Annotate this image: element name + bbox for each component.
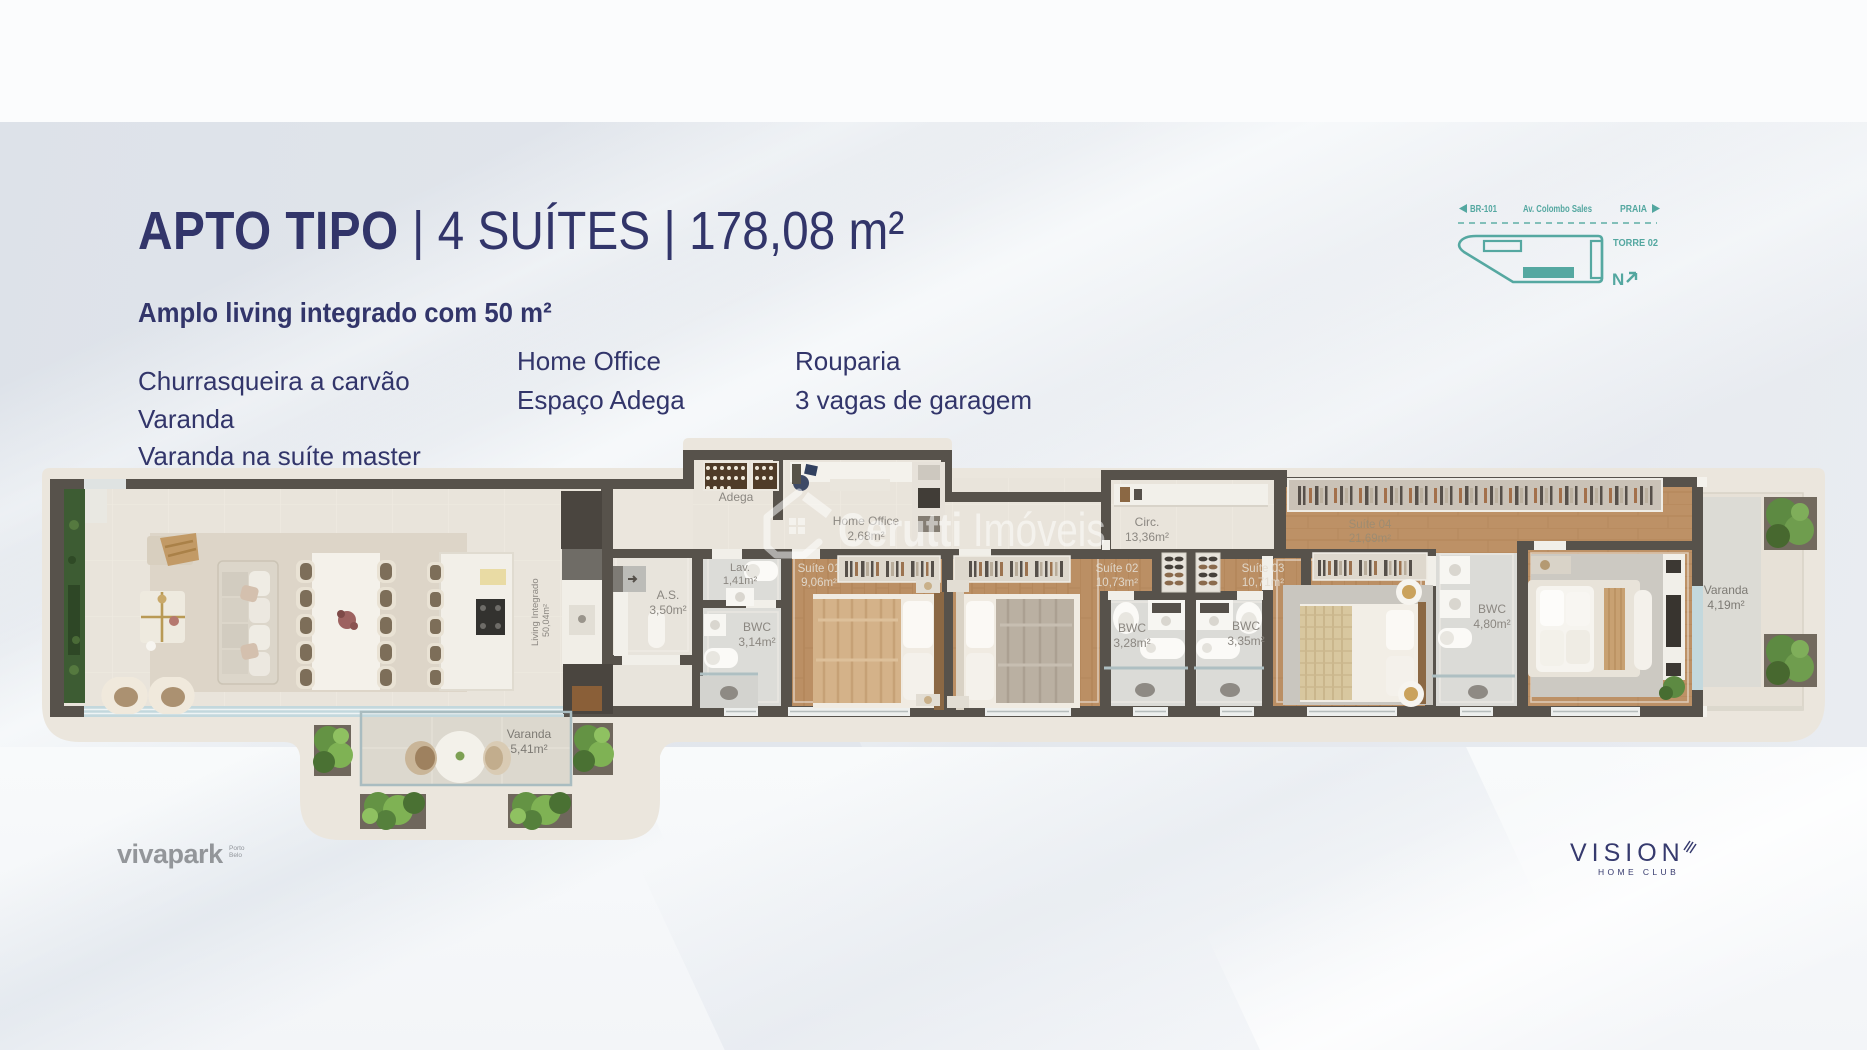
- svg-text:3,14m²: 3,14m²: [738, 635, 775, 649]
- svg-text:BWC: BWC: [1232, 619, 1260, 633]
- svg-text:Cerutti Imóveis: Cerutti Imóveis: [838, 504, 1106, 556]
- svg-text:Varanda: Varanda: [507, 727, 552, 741]
- svg-text:Adega: Adega: [719, 490, 754, 504]
- svg-text:13,36m²: 13,36m²: [1125, 530, 1169, 544]
- svg-text:Circ.: Circ.: [1135, 515, 1160, 529]
- svg-text:Suíte 01: Suíte 01: [798, 563, 841, 575]
- svg-text:50,04m²: 50,04m²: [541, 604, 551, 637]
- svg-text:BWC: BWC: [1118, 621, 1146, 635]
- svg-text:Suíte 04: Suíte 04: [1349, 519, 1392, 531]
- svg-text:Suíte 03: Suíte 03: [1242, 563, 1285, 575]
- svg-text:Living Integrado: Living Integrado: [530, 578, 541, 646]
- svg-text:4,19m²: 4,19m²: [1707, 598, 1744, 612]
- svg-text:3,28m²: 3,28m²: [1113, 636, 1150, 650]
- svg-text:3,50m²: 3,50m²: [649, 603, 686, 617]
- svg-text:1,41m²: 1,41m²: [723, 575, 758, 587]
- svg-text:5,41m²: 5,41m²: [510, 742, 547, 756]
- svg-text:9,06m²: 9,06m²: [801, 577, 837, 589]
- svg-text:10,73m²: 10,73m²: [1096, 577, 1138, 589]
- svg-text:10,71m²: 10,71m²: [1242, 577, 1284, 589]
- svg-text:4,80m²: 4,80m²: [1473, 617, 1510, 631]
- svg-text:A.S.: A.S.: [657, 588, 680, 602]
- svg-text:3,35m²: 3,35m²: [1227, 634, 1264, 648]
- svg-text:21,69m²: 21,69m²: [1349, 533, 1391, 545]
- svg-text:Lav.: Lav.: [730, 562, 750, 574]
- svg-text:BWC: BWC: [1478, 602, 1506, 616]
- svg-text:Suíte 02: Suíte 02: [1096, 563, 1139, 575]
- svg-text:BWC: BWC: [743, 620, 771, 634]
- svg-text:Varanda: Varanda: [1704, 583, 1749, 597]
